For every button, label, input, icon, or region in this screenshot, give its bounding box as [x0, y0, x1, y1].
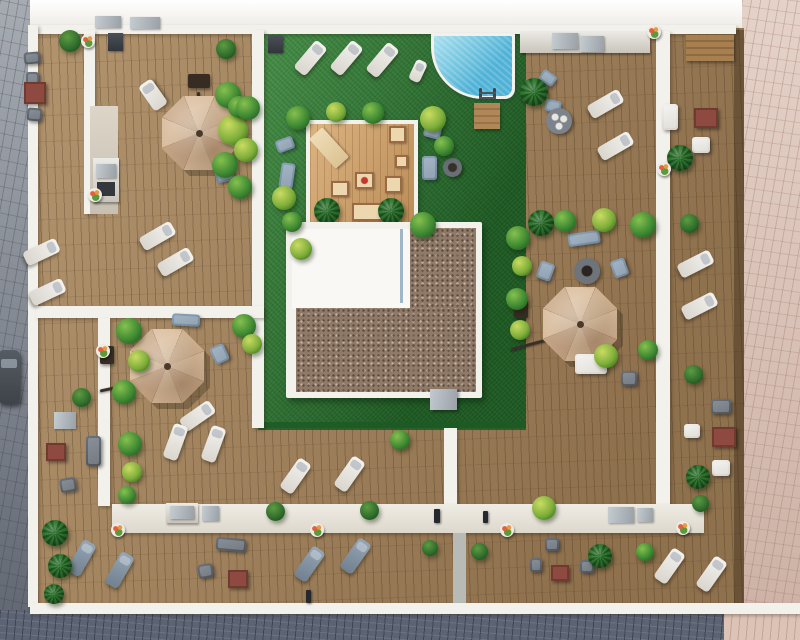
wood-stairs: [686, 35, 734, 61]
bush: [212, 152, 238, 178]
bush: [290, 238, 312, 260]
palm-plant: [378, 198, 404, 224]
deck-edge-shadow: [734, 30, 744, 608]
wall-bottom-center: [444, 428, 457, 506]
bush: [326, 102, 346, 122]
bush: [410, 212, 436, 238]
armchair-dark: [530, 558, 542, 572]
topiary-bush: [422, 540, 438, 556]
topiary-bush: [692, 495, 709, 512]
armchair-dark: [545, 538, 559, 551]
flower-pot: [96, 344, 110, 358]
fire-pit-table: [712, 427, 736, 447]
walkway-counter-top: [170, 506, 194, 519]
armchair-white: [692, 137, 710, 153]
flower-pot: [500, 523, 514, 537]
patio-cushion: [331, 181, 349, 197]
bush: [506, 226, 530, 250]
bush: [112, 380, 136, 404]
bush: [512, 256, 532, 276]
kitchen-counter: [95, 16, 121, 28]
topiary-bush: [471, 543, 488, 560]
building-roof: [286, 222, 482, 398]
kitchen-counter: [580, 36, 604, 52]
red-coffee-table: [228, 570, 248, 588]
walkway-path: [453, 533, 466, 605]
walkway-counter: [637, 508, 653, 522]
armchair-white: [662, 104, 678, 130]
palm-plant: [44, 584, 64, 604]
bush: [228, 175, 252, 199]
fire-pit-round: [443, 158, 462, 177]
fire-pit-round: [574, 258, 600, 284]
sofa: [422, 156, 437, 180]
roof-white-section: [292, 229, 410, 309]
roof-skylight-line: [400, 229, 403, 303]
bush: [630, 212, 656, 238]
wall-right-divider: [656, 31, 670, 505]
ottoman: [621, 371, 637, 386]
bush: [234, 138, 258, 162]
bollard-light: [483, 511, 488, 523]
street-right-pink-pavers: [742, 0, 800, 612]
bush: [594, 344, 618, 368]
sofa-dark: [86, 436, 101, 466]
bush: [506, 288, 528, 310]
bush: [242, 334, 262, 354]
bollard-light: [434, 509, 440, 523]
palm-plant: [314, 198, 340, 224]
patio-table: [355, 172, 374, 189]
side-table: [711, 399, 731, 414]
bush: [122, 462, 142, 482]
round-dining-table: [546, 108, 572, 134]
armchair-dark: [59, 477, 77, 494]
topiary-bush: [680, 214, 699, 233]
bush: [554, 210, 576, 232]
palm-plant: [588, 544, 612, 568]
pool-wood-steps: [474, 103, 500, 129]
flower-pot: [647, 25, 661, 39]
sofa: [172, 313, 201, 326]
walkway-counter: [202, 506, 219, 521]
palm-plant: [48, 554, 72, 578]
bush: [118, 486, 136, 504]
topiary-bush: [266, 502, 285, 521]
bush: [390, 430, 410, 450]
deck-bottom-edge: [30, 603, 800, 614]
armchair-dark: [197, 563, 214, 579]
flower-pot: [310, 523, 324, 537]
kitchen-sink: [96, 164, 116, 178]
bush: [434, 136, 454, 156]
armchair-dark: [26, 107, 42, 121]
utility-box: [54, 412, 76, 429]
bush: [282, 212, 302, 232]
doorway: [108, 33, 123, 51]
red-rug-coffee-table: [24, 82, 46, 104]
flower-pot: [81, 34, 95, 48]
bush: [636, 543, 654, 561]
parked-car: [0, 350, 20, 404]
lawn-shadow-edge: [258, 422, 526, 430]
roof-vent: [430, 389, 457, 410]
patio-cushion: [395, 155, 408, 168]
bush: [362, 102, 384, 124]
bush: [272, 186, 296, 210]
bush: [592, 208, 616, 232]
wall-lawn-left: [252, 30, 264, 428]
armchair-white: [712, 460, 730, 476]
topiary-bush: [684, 365, 703, 384]
bush: [128, 350, 150, 372]
red-coffee-table: [46, 443, 66, 461]
doorway: [268, 35, 283, 53]
bush: [532, 496, 556, 520]
fire-pit-table: [694, 108, 718, 128]
flower-pot: [676, 521, 690, 535]
palm-plant: [686, 465, 710, 489]
palm-plant: [42, 520, 68, 546]
topiary-bush: [360, 501, 379, 520]
kitchen-counter: [552, 33, 578, 49]
flower-pot: [657, 162, 671, 176]
flower-pot: [111, 523, 125, 537]
bush: [286, 106, 310, 130]
patio-cushion: [385, 176, 402, 193]
pool-ladder-step: [479, 97, 496, 99]
wall-midleft-horizontal: [36, 306, 264, 318]
roof-gravel-section: [296, 308, 476, 392]
bush: [236, 96, 260, 120]
palm-plant: [520, 78, 548, 106]
sofa-dark: [215, 537, 246, 553]
flower-pot: [88, 188, 102, 202]
bush: [118, 432, 142, 456]
walkway-counter: [608, 507, 634, 523]
palm-plant: [528, 210, 554, 236]
rooftop-aerial-render: [0, 0, 800, 640]
kitchen-counter: [130, 17, 160, 29]
topiary-bush: [59, 30, 81, 52]
bush: [116, 318, 142, 344]
patio-cushion: [389, 126, 406, 143]
topiary-bush: [216, 39, 236, 59]
bush: [420, 106, 446, 132]
bush: [638, 340, 658, 360]
parasol-base: [188, 74, 210, 88]
roof-gravel-section: [410, 228, 476, 310]
street-bottom-pavers: [0, 610, 800, 640]
bush: [510, 320, 530, 340]
pool-ladder-step: [479, 92, 496, 94]
street-bottom-pink-pavers: [724, 610, 800, 640]
armchair-white: [684, 424, 700, 438]
armchair-dark: [24, 51, 41, 64]
topiary-bush: [72, 388, 91, 407]
red-coffee-table: [551, 565, 569, 581]
bollard-light: [306, 590, 311, 603]
